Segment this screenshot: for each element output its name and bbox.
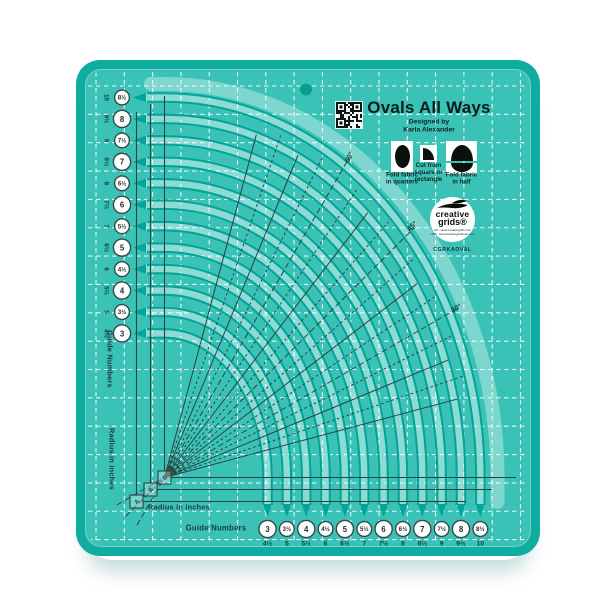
bottom-radius-value: 6 [324, 541, 328, 548]
designed-by-label: Designed by [409, 119, 449, 126]
left-guide-numbers-title: Guide Numbers [106, 330, 115, 388]
half-oval-top-shape [451, 145, 473, 161]
guide-number: 8 [120, 115, 125, 124]
qr-code [335, 101, 363, 129]
quarter-oval-icon [420, 145, 437, 162]
ovals-all-ways-ruler: CBA8½1089½7½978½6½867½5½756½4½645½3½534½… [0, 0, 612, 612]
cut-from-caption: Cut from square or rectangle [414, 161, 442, 183]
guide-number: 7 [420, 525, 424, 534]
oval-shape [395, 145, 410, 168]
designer-name: Karla Alexander [403, 127, 455, 134]
guide-number: 6½ [399, 526, 408, 533]
left-radius-value: 10 [103, 94, 110, 102]
guide-number: 5 [120, 243, 125, 252]
page-title: Ovals All Ways [367, 98, 490, 118]
left-radius-value: 6 [103, 267, 110, 271]
guide-number: 5½ [360, 526, 369, 533]
caption-line: Fold fabric [446, 171, 478, 178]
bottom-radius-value: 6½ [340, 540, 350, 548]
left-radius-value: 8 [103, 182, 110, 186]
guide-number: 5 [343, 525, 348, 534]
bottom-radius-value: 8½ [418, 540, 428, 548]
fold-half-caption: Fold fabric in half [446, 171, 478, 186]
caption-line: Cut from [416, 161, 442, 168]
guide-number: 7½ [437, 526, 446, 533]
guide-number: 3½ [118, 309, 127, 316]
hanging-hole [300, 84, 312, 96]
guide-number: 7 [120, 158, 124, 167]
bottom-radius-value: 8 [401, 541, 405, 548]
guide-number: 8 [459, 525, 464, 534]
bottom-radius-value: 4½ [263, 540, 273, 548]
guide-number: 6 [120, 201, 125, 210]
guide-number: 3½ [283, 526, 292, 533]
left-radius-value: 5 [103, 310, 110, 314]
left-radius-value: 7½ [103, 200, 111, 210]
product-code: CGRKAOVAL [433, 247, 471, 253]
caption-line: Fold fabric [386, 171, 418, 178]
caption-line: rectangle [415, 176, 443, 183]
bottom-guide-numbers-title: Guide Numbers [186, 524, 247, 533]
caption-line: in quarters [386, 179, 418, 186]
full-oval-icon [391, 141, 413, 172]
guide-number: 8½ [118, 95, 127, 102]
left-radius-value: 9½ [103, 115, 111, 125]
guide-number: 7½ [118, 138, 127, 145]
left-radius-value: 7 [103, 224, 110, 228]
bottom-radius-value: 5 [285, 541, 289, 548]
bottom-radius-title: Radius in inches [148, 503, 210, 512]
left-radius-value: 5½ [103, 286, 111, 296]
left-radius-value: 9 [103, 139, 110, 143]
bottom-radius-value: 9 [440, 541, 444, 548]
caption-line: in half [452, 179, 470, 186]
ruler-graphic: CBA8½1089½7½978½6½867½5½756½4½645½3½534½… [0, 0, 612, 612]
guide-number: 6 [381, 525, 386, 534]
guide-number: 8½ [476, 526, 485, 533]
left-radius-value: 6½ [103, 243, 111, 253]
bottom-radius-value: 5½ [301, 540, 311, 548]
guide-number: 4½ [321, 526, 330, 533]
creative-grids-logo: creative grids® UK : www.creativegrids.c… [430, 197, 475, 242]
left-radius-title: Radius in inches [108, 428, 117, 490]
guide-number: 3 [265, 525, 270, 534]
bottom-radius-value: 7½ [379, 540, 389, 548]
brand-url-usa: USA : www.creativegridsusa.com [430, 233, 475, 237]
quarter-shape [423, 148, 434, 160]
guide-number: 6½ [118, 181, 127, 188]
guide-number: 5½ [118, 223, 127, 230]
bottom-radius-value: 9½ [456, 540, 466, 548]
guide-number: 3 [120, 329, 125, 338]
bottom-radius-value: 7 [362, 541, 366, 548]
creative-grids-swoosh [430, 198, 475, 212]
guide-number: 4 [304, 525, 309, 534]
half-oval-icon [446, 141, 477, 161]
caption-line: square or [414, 169, 442, 176]
fold-quarters-caption: Fold fabric in quarters [386, 171, 418, 186]
brand-name-2: grids® [430, 218, 475, 227]
bottom-radius-value: 10 [477, 541, 485, 548]
left-radius-value: 8½ [103, 157, 111, 167]
guide-number: 4 [120, 286, 125, 295]
guide-number: 4½ [118, 266, 127, 273]
